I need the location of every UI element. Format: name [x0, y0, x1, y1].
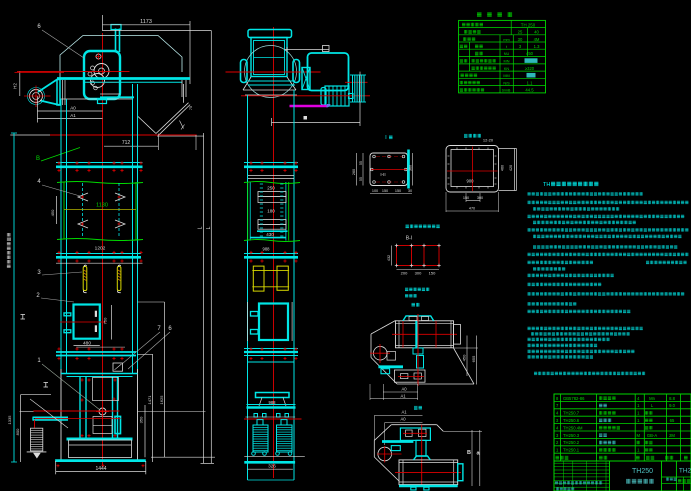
svg-text:100: 100	[372, 189, 378, 193]
svg-text:L: L	[198, 226, 204, 229]
svg-text:B-I: B-I	[406, 236, 412, 242]
svg-text:GB5782-86: GB5782-86	[563, 396, 585, 401]
svg-text:TH250.6: TH250.6	[563, 418, 580, 423]
svg-text:1173: 1173	[140, 19, 152, 25]
svg-text:TH250.4M: TH250.4M	[563, 425, 583, 430]
svg-text:55: 55	[359, 161, 363, 165]
svg-text:180: 180	[267, 208, 275, 213]
svg-text:65: 65	[670, 418, 675, 423]
svg-text:420: 420	[509, 165, 513, 171]
svg-text:TH250.1: TH250.1	[563, 448, 580, 453]
svg-text:mm: mm	[503, 38, 509, 42]
svg-text:A0: A0	[401, 387, 407, 392]
svg-text:TH250.3: TH250.3	[563, 433, 580, 438]
svg-text:712: 712	[122, 140, 131, 146]
svg-text:300: 300	[415, 271, 422, 276]
svg-text:N/S: N/S	[503, 81, 510, 85]
svg-text:1335: 1335	[7, 415, 12, 425]
svg-text:A1: A1	[70, 113, 76, 118]
svg-text:30: 30	[408, 189, 412, 193]
svg-text:12-20: 12-20	[483, 138, 494, 143]
svg-text:1202: 1202	[95, 246, 106, 252]
svg-text:75: 75	[189, 106, 193, 110]
svg-text:4M: 4M	[534, 37, 540, 42]
svg-text:326: 326	[268, 464, 276, 469]
svg-text:MM: MM	[503, 74, 509, 78]
svg-text:B: B	[36, 156, 40, 162]
svg-text:1.1: 1.1	[527, 80, 533, 85]
svg-text:KN: KN	[504, 67, 510, 71]
svg-text:TH250.2: TH250.2	[563, 440, 580, 445]
svg-text:≥320: ≥320	[525, 66, 535, 71]
svg-text:NU: NU	[504, 52, 510, 56]
svg-text:450: 450	[462, 354, 467, 361]
svg-text:TH 250: TH 250	[521, 22, 536, 27]
svg-text:750: 750	[103, 317, 108, 324]
svg-text:200: 200	[401, 271, 408, 276]
svg-text:2M: 2M	[669, 433, 675, 438]
svg-text:1130: 1130	[96, 203, 108, 209]
svg-text:470: 470	[469, 207, 475, 211]
svg-text:A1: A1	[401, 410, 407, 415]
svg-text:S/mB: S/mB	[502, 89, 511, 93]
svg-text:260: 260	[352, 169, 356, 175]
svg-text:430: 430	[266, 232, 274, 237]
svg-text:450: 450	[526, 51, 534, 56]
svg-text:1625: 1625	[159, 395, 164, 405]
svg-text:360: 360	[409, 165, 413, 171]
svg-text:TH250: TH250	[632, 468, 653, 475]
svg-text:1471: 1471	[147, 395, 152, 405]
svg-text:I-II: I-II	[380, 172, 385, 177]
svg-text:25: 25	[518, 30, 523, 35]
svg-text:I: I	[385, 135, 386, 141]
svg-text:44.5: 44.5	[525, 88, 534, 93]
svg-text:1444: 1444	[95, 466, 106, 472]
svg-text:TH: TH	[543, 182, 550, 188]
svg-text:900: 900	[467, 179, 475, 184]
svg-text:350: 350	[139, 416, 144, 423]
svg-text:M: M	[637, 433, 641, 438]
svg-text:150: 150	[429, 271, 436, 276]
svg-text:432: 432	[387, 255, 391, 261]
svg-text:40: 40	[534, 30, 539, 35]
svg-text:A0: A0	[70, 106, 76, 111]
svg-text:L: L	[206, 226, 212, 229]
svg-text:655: 655	[471, 355, 476, 362]
svg-text:H2: H2	[13, 83, 18, 89]
svg-text:9.0: 9.0	[669, 403, 675, 408]
svg-text:A1: A1	[400, 394, 406, 399]
svg-text:8.8: 8.8	[669, 396, 675, 401]
svg-text:250: 250	[267, 186, 275, 191]
svg-text:450: 450	[50, 209, 55, 216]
svg-text:800: 800	[15, 428, 20, 435]
svg-text:Mn: Mn	[649, 396, 655, 401]
svg-text:30: 30	[518, 37, 523, 42]
svg-text:TH2: TH2	[679, 468, 691, 475]
svg-text:150: 150	[382, 189, 388, 193]
svg-text:MN: MN	[504, 60, 510, 64]
svg-text:55: 55	[359, 177, 363, 181]
svg-text:988: 988	[263, 247, 271, 252]
svg-text:1.3: 1.3	[534, 44, 540, 49]
svg-text:TH250.7: TH250.7	[563, 411, 580, 416]
svg-text:150: 150	[395, 189, 401, 193]
svg-text:480: 480	[83, 340, 91, 346]
svg-text:460: 460	[501, 165, 505, 171]
svg-text:GB-A: GB-A	[647, 433, 657, 438]
svg-text:A0: A0	[400, 417, 406, 422]
svg-text:B: B	[467, 450, 471, 456]
